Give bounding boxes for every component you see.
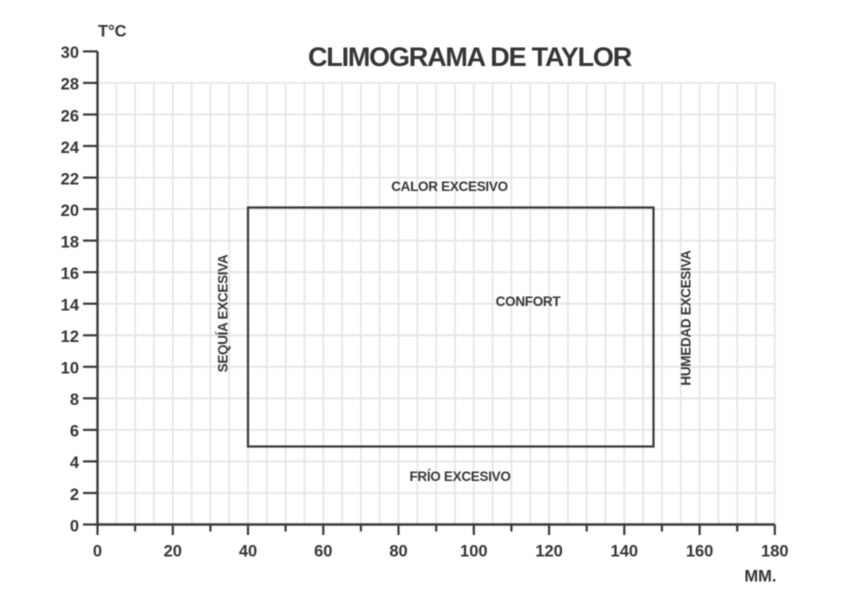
svg-text:20: 20 <box>61 202 79 220</box>
svg-text:SEQUÍA EXCESIVA: SEQUÍA EXCESIVA <box>215 254 230 372</box>
svg-text:6: 6 <box>70 423 79 441</box>
svg-text:100: 100 <box>460 543 488 561</box>
svg-text:0: 0 <box>93 543 102 561</box>
svg-text:2: 2 <box>70 486 79 504</box>
svg-text:MM.: MM. <box>744 568 776 586</box>
svg-text:8: 8 <box>70 391 79 409</box>
svg-text:10: 10 <box>61 360 79 378</box>
svg-text:60: 60 <box>314 543 332 561</box>
svg-text:26: 26 <box>61 107 79 125</box>
svg-text:CLIMOGRAMA DE TAYLOR: CLIMOGRAMA DE TAYLOR <box>308 42 632 72</box>
svg-text:14: 14 <box>61 297 80 315</box>
svg-text:4: 4 <box>70 454 80 472</box>
svg-text:16: 16 <box>61 265 79 283</box>
svg-text:T°C: T°C <box>98 23 127 41</box>
svg-text:24: 24 <box>61 139 80 157</box>
svg-text:140: 140 <box>611 543 639 561</box>
svg-text:28: 28 <box>61 76 79 94</box>
svg-text:22: 22 <box>61 170 79 188</box>
svg-text:CONFORT: CONFORT <box>496 294 562 309</box>
svg-text:20: 20 <box>164 543 182 561</box>
svg-text:12: 12 <box>61 328 79 346</box>
svg-text:FRÍO EXCESIVO: FRÍO EXCESIVO <box>409 469 510 484</box>
svg-text:40: 40 <box>239 543 257 561</box>
svg-text:18: 18 <box>61 233 79 251</box>
svg-text:30: 30 <box>61 44 79 62</box>
svg-text:80: 80 <box>389 543 407 561</box>
svg-text:HUMEDAD EXCESIVA: HUMEDAD EXCESIVA <box>678 250 693 386</box>
svg-text:120: 120 <box>535 543 563 561</box>
svg-text:CALOR EXCESIVO: CALOR EXCESIVO <box>391 179 508 194</box>
svg-text:160: 160 <box>686 543 714 561</box>
svg-text:180: 180 <box>761 543 789 561</box>
svg-text:0: 0 <box>70 517 79 535</box>
